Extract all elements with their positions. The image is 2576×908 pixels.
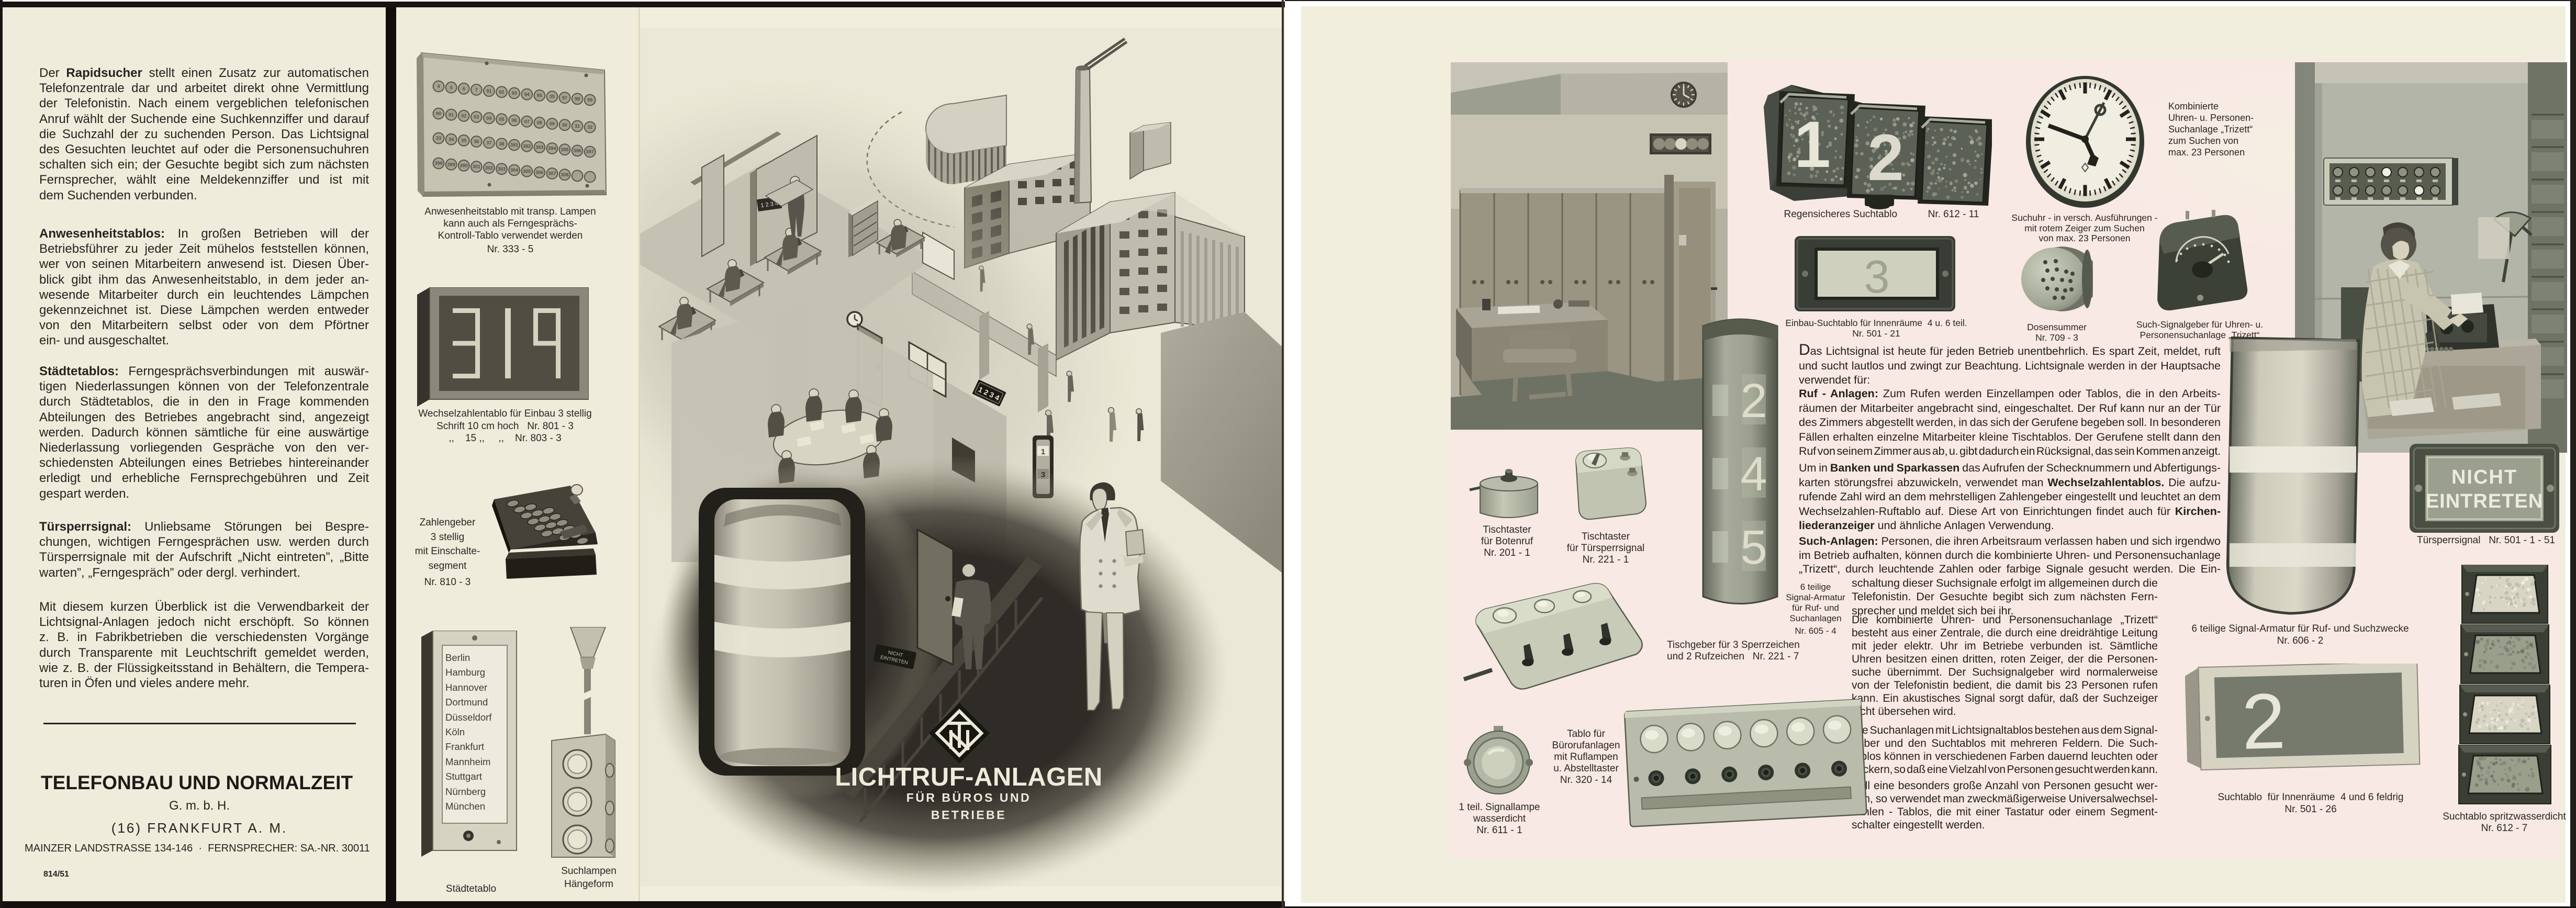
svg-text:33: 33 (436, 136, 441, 141)
svg-text:399: 399 (447, 162, 455, 167)
svg-text:05: 05 (499, 117, 504, 122)
svg-text:2: 2 (1740, 374, 1767, 428)
svg-text:99: 99 (587, 97, 592, 103)
svg-text:34: 34 (449, 137, 454, 142)
svg-text:91: 91 (486, 88, 491, 94)
svg-text:04: 04 (486, 116, 491, 121)
svg-text:4: 4 (437, 84, 440, 89)
svg-text:397: 397 (586, 149, 594, 154)
svg-text:1: 1 (1794, 108, 1831, 181)
svg-text:4: 4 (1740, 447, 1767, 501)
svg-text:393: 393 (535, 145, 543, 150)
svg-text:37: 37 (486, 140, 491, 145)
svg-text:5: 5 (450, 85, 453, 90)
svg-text:2: 2 (2241, 677, 2287, 766)
svg-text:94: 94 (524, 92, 530, 97)
svg-text:07: 07 (524, 119, 530, 124)
svg-text:90: 90 (436, 111, 441, 116)
svg-text:307: 307 (548, 171, 556, 176)
svg-text:392: 392 (523, 143, 531, 149)
svg-text:92: 92 (499, 89, 504, 95)
svg-text:09: 09 (550, 121, 555, 127)
svg-text:5: 5 (1740, 521, 1767, 574)
svg-text:NICHT: NICHT (2451, 466, 2517, 488)
svg-text:390: 390 (460, 163, 468, 169)
svg-text:6: 6 (463, 86, 465, 92)
svg-text:303: 303 (498, 166, 506, 172)
svg-text:2: 2 (1867, 121, 1904, 194)
svg-text:308: 308 (561, 172, 568, 177)
svg-text:06: 06 (512, 118, 517, 123)
svg-text:391: 391 (510, 142, 518, 148)
svg-text:08: 08 (537, 120, 542, 126)
svg-text:36: 36 (474, 139, 479, 144)
svg-text:97: 97 (562, 95, 567, 100)
svg-text:EINTRETEN: EINTRETEN (2426, 490, 2543, 512)
svg-text:395: 395 (561, 147, 568, 152)
svg-text:38: 38 (499, 141, 504, 147)
svg-text:35: 35 (461, 138, 466, 143)
svg-text:98: 98 (575, 96, 580, 102)
svg-text:398: 398 (434, 161, 442, 166)
svg-text:32: 32 (587, 125, 592, 130)
svg-text:93: 93 (512, 91, 517, 96)
svg-text:01: 01 (449, 112, 454, 117)
svg-text:31: 31 (575, 124, 580, 129)
svg-text:95: 95 (537, 93, 542, 98)
svg-text:394: 394 (548, 146, 556, 151)
svg-text:304: 304 (510, 167, 518, 173)
svg-text:7: 7 (475, 87, 478, 93)
svg-text:305: 305 (523, 169, 531, 174)
svg-text:301: 301 (473, 164, 480, 170)
svg-text:306: 306 (535, 170, 543, 175)
svg-text:02: 02 (461, 114, 466, 119)
svg-text:03: 03 (474, 115, 479, 120)
svg-text:35: 35 (550, 94, 555, 99)
svg-text:3: 3 (1864, 251, 1890, 302)
svg-text:396: 396 (574, 148, 581, 153)
svg-text:00: 00 (562, 122, 567, 128)
svg-text:302: 302 (485, 165, 493, 171)
